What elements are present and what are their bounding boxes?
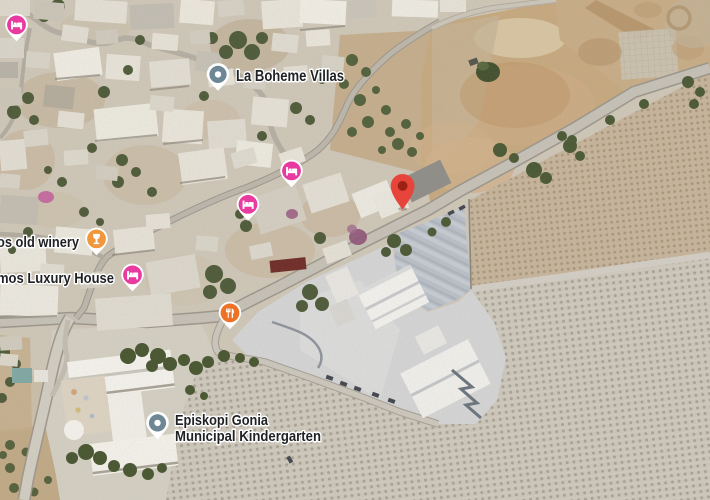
svg-text:La Boheme Villas: La Boheme Villas: [236, 68, 344, 85]
svg-text:mos Luxury House: mos Luxury House: [0, 271, 114, 287]
svg-text:os old winery: os old winery: [0, 235, 79, 251]
svg-text:Episkopi Gonia: Episkopi Gonia: [175, 412, 269, 429]
svg-text:Municipal Kindergarten: Municipal Kindergarten: [175, 428, 321, 445]
